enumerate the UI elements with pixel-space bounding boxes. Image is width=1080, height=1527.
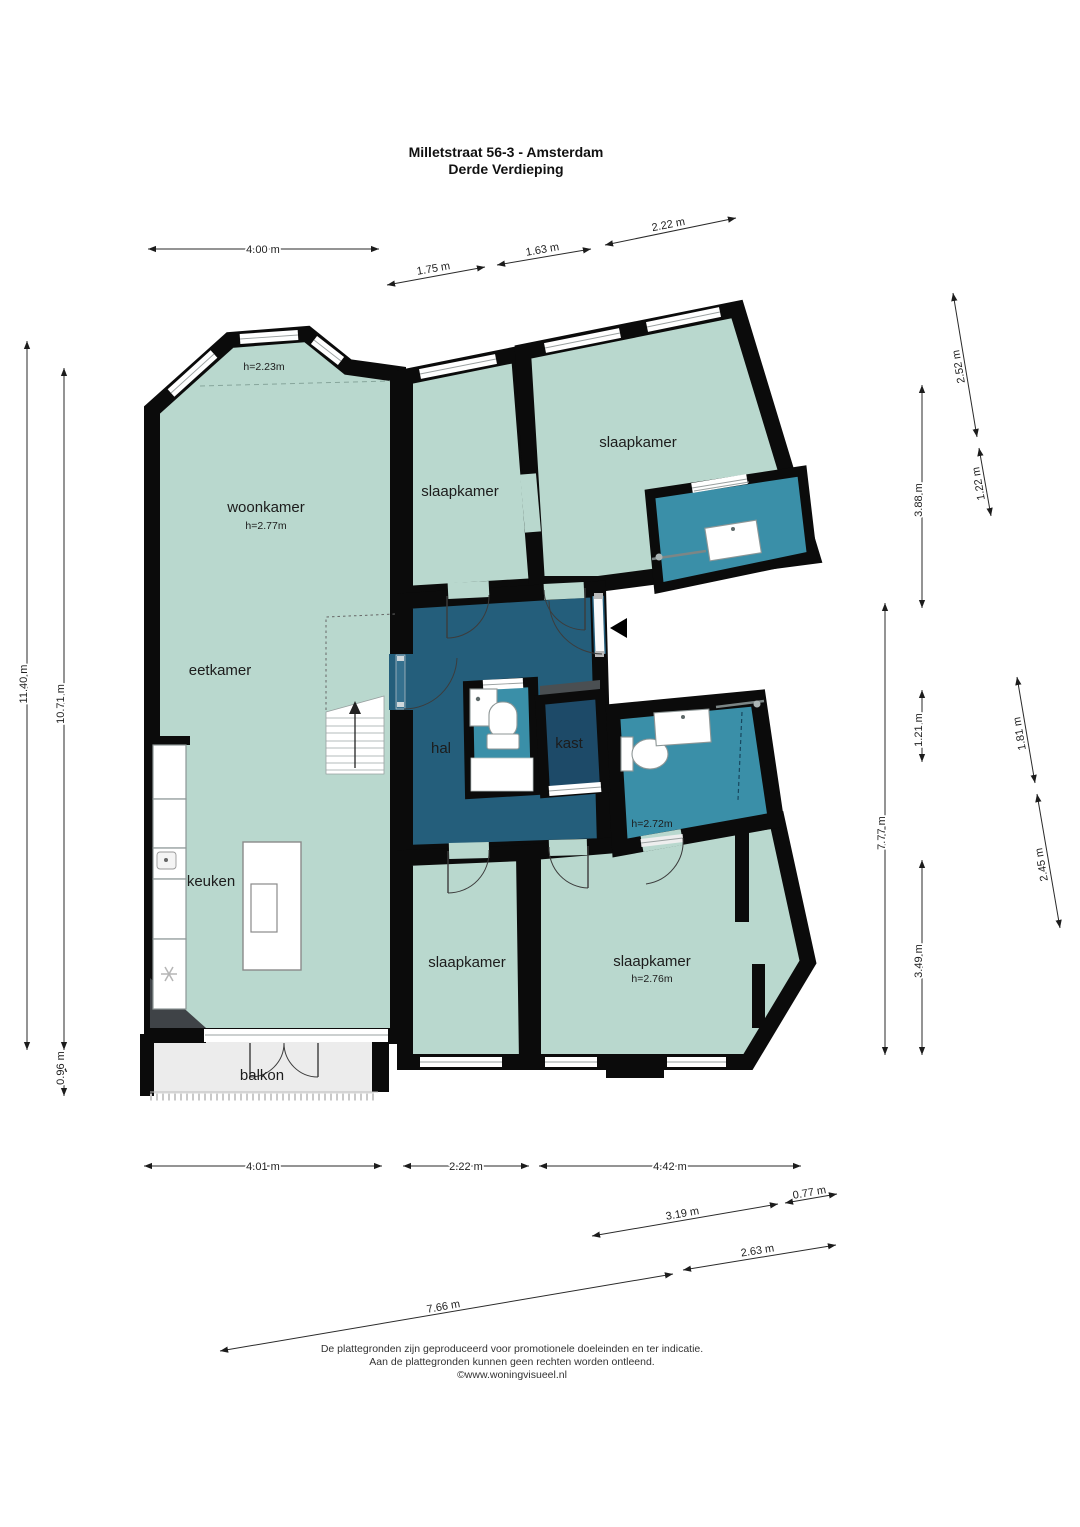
title-line-1: Milletstraat 56-3 - Amsterdam [409,144,604,160]
shower-tray [471,758,533,791]
opening-hal-slaap-br [549,847,587,848]
balcony-right-wall [372,1034,389,1092]
door-hinge [594,593,603,599]
label-hal: hal [431,740,451,757]
dim-label: 3.49 m [913,944,925,978]
dim-label: 1.75 m [416,260,451,278]
label-badkamer-height: h=2.72m [631,818,672,830]
room-slaapkamer-top-left [405,354,537,594]
dim-label: 4.00 m [246,244,280,256]
dim-label: 4.01 m [246,1161,280,1173]
opening-hal-slaap-bl [449,850,489,851]
shower-head-icon [754,701,761,708]
dim-label: 4.42 m [653,1161,687,1173]
dimensions-right: 2.52 m 1.22 m 3.88 m 1.21 m 7.77 m 1.81 … [876,293,1060,1055]
title-line-2: Derde Verdieping [448,161,563,177]
floor-plan-page: Milletstraat 56-3 - Amsterdam Derde Verd… [0,0,1080,1527]
footer-copyright: ©www.woningvisueel.nl [457,1369,567,1381]
dim-label: 10.71 m [55,684,67,724]
label-eetkamer: eetkamer [189,662,252,679]
faucet-icon [476,697,480,701]
wall-stub [396,996,413,1036]
balcony-left-wall [140,1034,154,1096]
toilet-tank [621,737,633,771]
page-title: Milletstraat 56-3 - Amsterdam Derde Verd… [409,144,604,177]
sliding-door-kast [549,787,601,791]
dimensions-top: 4.00 m 1.75 m 1.63 m 2.22 m [148,216,736,285]
toilet-tank [487,734,519,749]
dim-label: 0.96 m [55,1051,67,1085]
sliding-door-wc [483,683,523,685]
opening-between-top-slaapkamers [528,474,533,532]
dim-label: 2.45 m [1033,847,1051,882]
dim-label: 1.63 m [525,241,560,259]
door-hinge [397,656,404,661]
label-erker-height: h=2.23m [243,361,284,373]
dim-label: 7.77 m [876,816,888,850]
dim-label: 1.21 m [913,713,925,747]
entrance-arrow-icon [610,618,627,638]
closet-wall-stub [752,964,765,1028]
balcony-window-band [204,1029,388,1042]
kitchen-cabinet [153,745,186,799]
label-kast: kast [555,735,583,752]
kitchen-counter-end-wall [150,736,190,745]
faucet-icon [164,858,168,862]
floor-plan-svg: Milletstraat 56-3 - Amsterdam Derde Verd… [0,0,1080,1527]
faucet-icon [731,527,735,531]
dim-label: 2.22 m [449,1161,483,1173]
faucet-icon [681,715,685,719]
balcony [140,1029,389,1097]
dimensions-bottom: 4.01 m 2.22 m 4.42 m 3.19 m 0.77 m 2.63 … [144,1161,837,1351]
wall-stub [396,922,413,968]
toilet-icon [489,702,517,738]
front-door-leaf [598,596,600,654]
dim-label: 2.63 m [740,1242,775,1259]
opening-hal-slaap-tr [544,590,584,592]
label-slaapkamer-tl: slaapkamer [421,483,499,500]
label-slaapkamer-tr: slaapkamer [599,434,677,451]
label-woonkamer: woonkamer [226,499,305,516]
dim-label: 11.40 m [18,665,30,704]
label-keuken: keuken [187,873,235,890]
door-hinge [397,702,404,707]
kitchen-cabinet [153,799,186,848]
label-slaapkamer-br: slaapkamer [613,953,691,970]
label-woonkamer-height: h=2.77m [245,520,286,532]
footer-line-1: De plattegronden zijn geproduceerd voor … [321,1343,703,1355]
footer-line-2: Aan de plattegronden kunnen geen rechten… [369,1356,654,1368]
wall-chunk-bottom [606,1054,664,1078]
label-balkon: balkon [240,1067,284,1084]
opening-hal-slaap-tl [448,589,489,591]
dimensions-left: 11.40 m 10.71 m 0.96 m [18,341,67,1096]
sink-icon [654,709,711,746]
room-slaapkamer-bottom-right [533,820,808,1062]
door-leaf-eetkamer [396,655,405,709]
shower-head-icon [656,554,663,561]
closet-wall-stub [735,828,749,922]
kitchen-island [243,842,301,970]
kitchen-cabinet [153,879,186,939]
dim-label: 3.88 m [913,483,925,517]
label-slaapkamer-br-height: h=2.76m [631,973,672,985]
footer: De plattegronden zijn geproduceerd voor … [321,1343,703,1381]
balcony-wall-piece [150,1029,206,1043]
label-slaapkamer-bl: slaapkamer [428,954,506,971]
